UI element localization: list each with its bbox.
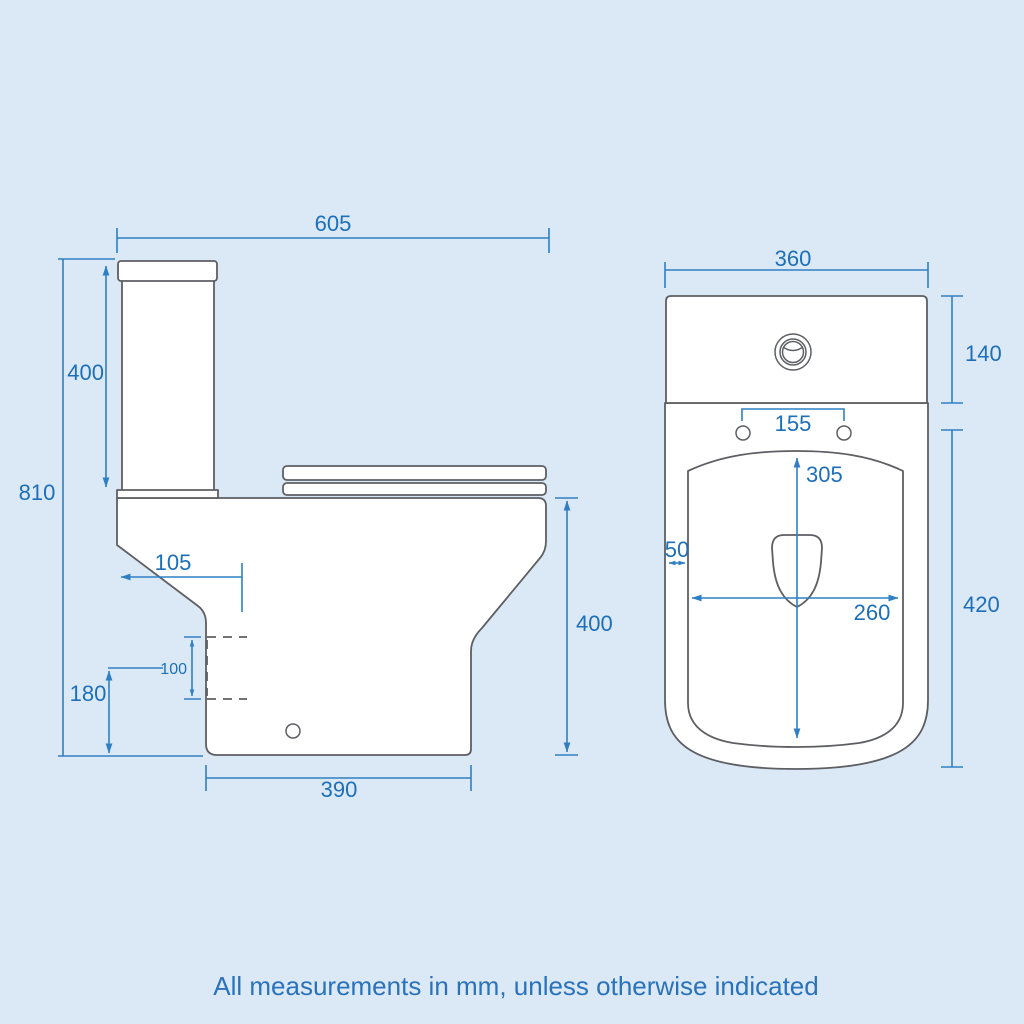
side-view: 605 810 400 105 100 180: [19, 211, 613, 802]
cistern-body-side: [122, 280, 214, 492]
dim-label-105: 105: [155, 550, 192, 575]
dim-label-260: 260: [854, 600, 891, 625]
dim-label-155: 155: [775, 411, 812, 436]
dim-label-400-pan: 400: [576, 611, 613, 636]
technical-drawing: 605 810 400 105 100 180: [0, 0, 1024, 1024]
dim-cistern-height: 400: [67, 266, 106, 487]
front-view: 360 140 420 155 305 50 260: [665, 246, 1002, 769]
cistern-base-side: [117, 490, 218, 498]
dim-pan-height-side: 400: [555, 498, 613, 755]
cistern-lid-side: [118, 261, 217, 281]
dim-label-180: 180: [70, 681, 107, 706]
dim-cistern-height-front: 140: [941, 296, 1002, 403]
dim-pan-height-front: 420: [941, 430, 1000, 767]
dim-label-400-cistern: 400: [67, 360, 104, 385]
dim-label-810: 810: [19, 480, 56, 505]
pan-profile: [117, 498, 546, 755]
dim-base-depth: 390: [206, 765, 471, 802]
measurement-note: All measurements in mm, unless otherwise…: [213, 971, 818, 1001]
dim-overall-width: 360: [665, 246, 928, 288]
dim-label-50: 50: [665, 537, 689, 562]
dim-label-140: 140: [965, 341, 1002, 366]
dim-label-360: 360: [775, 246, 812, 271]
dim-rim-width: 50: [665, 537, 689, 563]
toilet-dimension-diagram: 605 810 400 105 100 180: [0, 0, 1024, 1024]
dim-overall-depth: 605: [117, 211, 549, 253]
dim-label-100: 100: [160, 661, 187, 678]
dim-label-420: 420: [963, 592, 1000, 617]
dim-outlet: 100: [160, 637, 201, 699]
dim-label-605: 605: [315, 211, 352, 236]
seat-lid-side: [283, 466, 546, 480]
dim-outlet-height: 180: [70, 668, 163, 753]
dim-label-305: 305: [806, 462, 843, 487]
seat-ring-side: [283, 483, 546, 495]
dim-label-390: 390: [321, 777, 358, 802]
